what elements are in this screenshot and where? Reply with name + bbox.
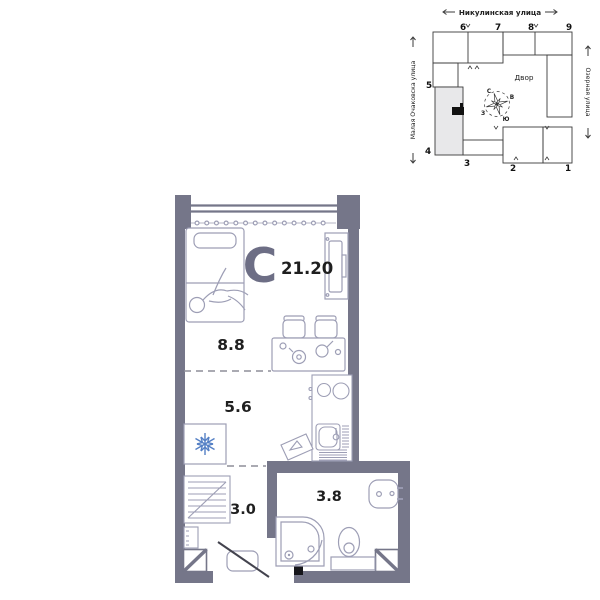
- courtyard-label: Двор: [514, 73, 533, 82]
- toilet: [339, 528, 360, 557]
- building-number-5: 5: [426, 81, 432, 91]
- building-number-9: 9: [566, 23, 572, 33]
- building-number-1: 1: [565, 164, 571, 174]
- building-number-3: 3: [464, 159, 470, 169]
- bed: [186, 228, 248, 322]
- wardrobe: [184, 476, 230, 523]
- compass-east: В: [510, 95, 515, 101]
- street-name-right: Озерная улица: [584, 67, 591, 116]
- dining-set: [272, 316, 345, 371]
- fridge: [184, 424, 226, 464]
- building-number-8: 8: [528, 23, 534, 33]
- highlighted-building-section: [435, 87, 463, 155]
- stove-knob: [309, 397, 312, 400]
- total-area-label: 21.20: [281, 259, 333, 278]
- building-number-7: 7: [495, 23, 501, 33]
- corner-column-left: [184, 550, 207, 572]
- room-area-bathroom: 3.8: [316, 489, 342, 505]
- apartment-type-label: С: [243, 239, 278, 294]
- street-name-top: Никулинская улица: [459, 8, 541, 17]
- shelf-unit: [184, 527, 198, 548]
- room-area-kitchen: 5.6: [224, 398, 251, 416]
- bathroom-ledge: [331, 557, 375, 570]
- floorplan-page: Никулинская улица Малая Очаковска улица …: [0, 0, 600, 600]
- chair: [315, 320, 337, 338]
- kitchen-counter: [309, 375, 352, 461]
- building-number-4: 4: [425, 147, 431, 157]
- bathroom-sink: [369, 480, 403, 508]
- compass-west: З: [481, 111, 485, 117]
- compass-rose-icon: С В З Ю: [481, 89, 515, 123]
- street-name-left: Малая Очаковска улица: [410, 60, 417, 139]
- shower: [276, 517, 324, 566]
- stove-knob: [309, 388, 312, 391]
- cutting-board: [281, 434, 313, 460]
- compass-north: С: [487, 89, 491, 95]
- entry-door: [218, 542, 269, 577]
- site-plan: Никулинская улица Малая Очаковска улица …: [398, 0, 600, 182]
- corner-column-right: [376, 550, 399, 572]
- building-number-6: 6: [460, 23, 466, 33]
- chair: [283, 320, 305, 338]
- room-area-hallway: 3.0: [230, 502, 256, 518]
- window: [191, 206, 337, 212]
- room-area-living: 8.8: [217, 336, 244, 354]
- floor-plan: С 21.20 8.8 5.6 3.0 3.8: [168, 190, 420, 590]
- building-number-2: 2: [510, 164, 516, 174]
- compass-south: Ю: [503, 117, 510, 123]
